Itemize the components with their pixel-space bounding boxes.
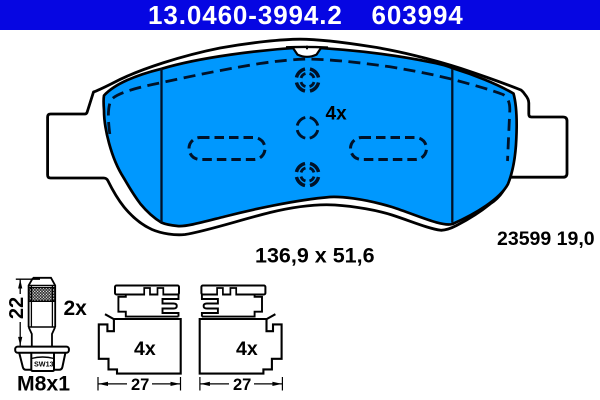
svg-text:136,9 x 51,6: 136,9 x 51,6 xyxy=(255,244,375,268)
svg-text:M8x1: M8x1 xyxy=(17,373,70,396)
svg-text:23599 19,0: 23599 19,0 xyxy=(497,228,595,250)
svg-text:4x: 4x xyxy=(236,338,258,360)
svg-text:SW13: SW13 xyxy=(34,360,54,369)
svg-text:4x: 4x xyxy=(326,104,348,125)
svg-text:13.0460-3994.2: 13.0460-3994.2 xyxy=(148,0,343,30)
svg-text:22: 22 xyxy=(6,297,28,319)
svg-text:27: 27 xyxy=(131,376,149,394)
svg-text:27: 27 xyxy=(233,376,251,394)
svg-text:603994: 603994 xyxy=(372,0,464,30)
svg-text:2x: 2x xyxy=(64,297,88,320)
svg-text:4x: 4x xyxy=(134,338,156,360)
